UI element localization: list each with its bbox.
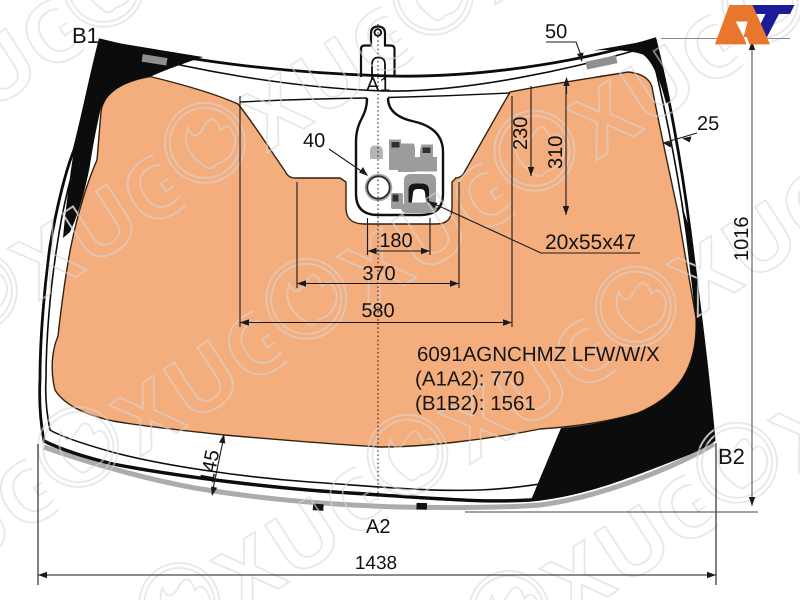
svg-text:1438: 1438 <box>355 553 397 574</box>
svg-text:20x55x47: 20x55x47 <box>545 231 636 254</box>
svg-text:50: 50 <box>545 21 567 43</box>
svg-text:6091AGNCHMZ LFW/W/X: 6091AGNCHMZ LFW/W/X <box>417 343 660 366</box>
svg-text:580: 580 <box>361 300 394 322</box>
svg-text:(B1B2): 1561: (B1B2): 1561 <box>415 392 536 415</box>
svg-text:310: 310 <box>545 136 567 169</box>
svg-text:B1: B1 <box>72 23 99 48</box>
svg-text:230: 230 <box>510 117 532 150</box>
svg-text:1016: 1016 <box>731 217 753 262</box>
svg-text:180: 180 <box>379 230 412 252</box>
svg-text:25: 25 <box>697 113 719 135</box>
svg-text:370: 370 <box>362 263 395 285</box>
svg-text:A1: A1 <box>366 74 390 96</box>
svg-text:(A1A2): 770: (A1A2): 770 <box>415 368 524 391</box>
svg-text:40: 40 <box>303 130 325 152</box>
svg-text:A2: A2 <box>366 516 390 538</box>
svg-text:B2: B2 <box>718 444 745 469</box>
